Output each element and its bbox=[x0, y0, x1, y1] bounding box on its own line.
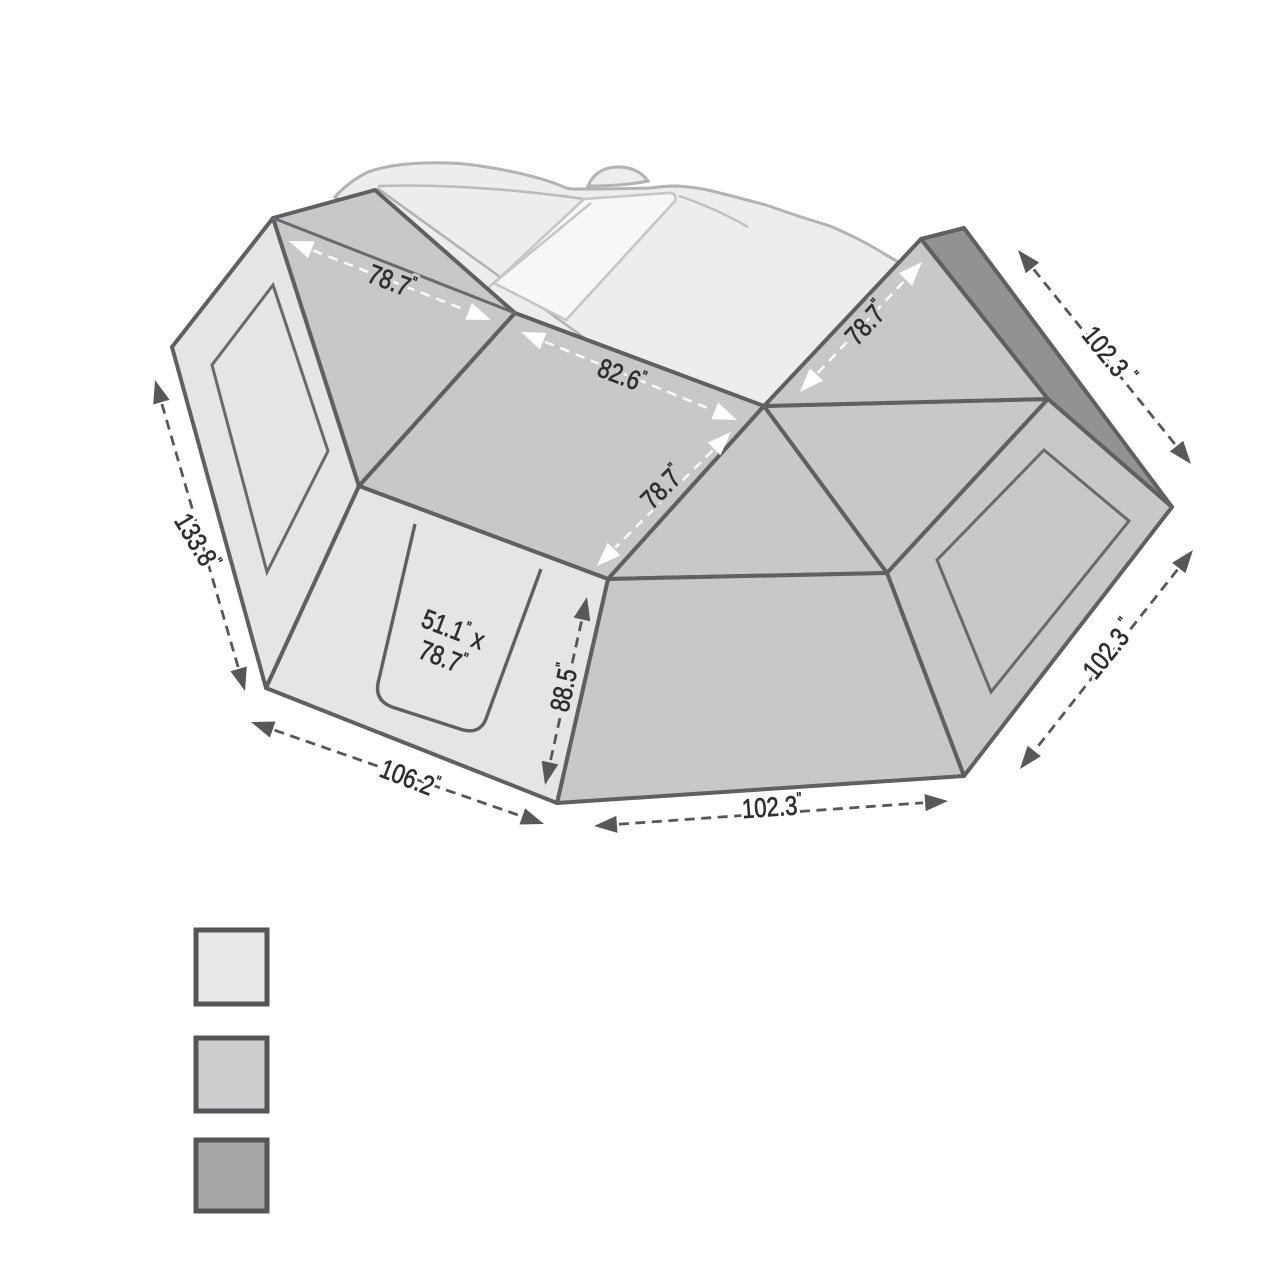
svg-text:102.3": 102.3" bbox=[741, 790, 803, 825]
